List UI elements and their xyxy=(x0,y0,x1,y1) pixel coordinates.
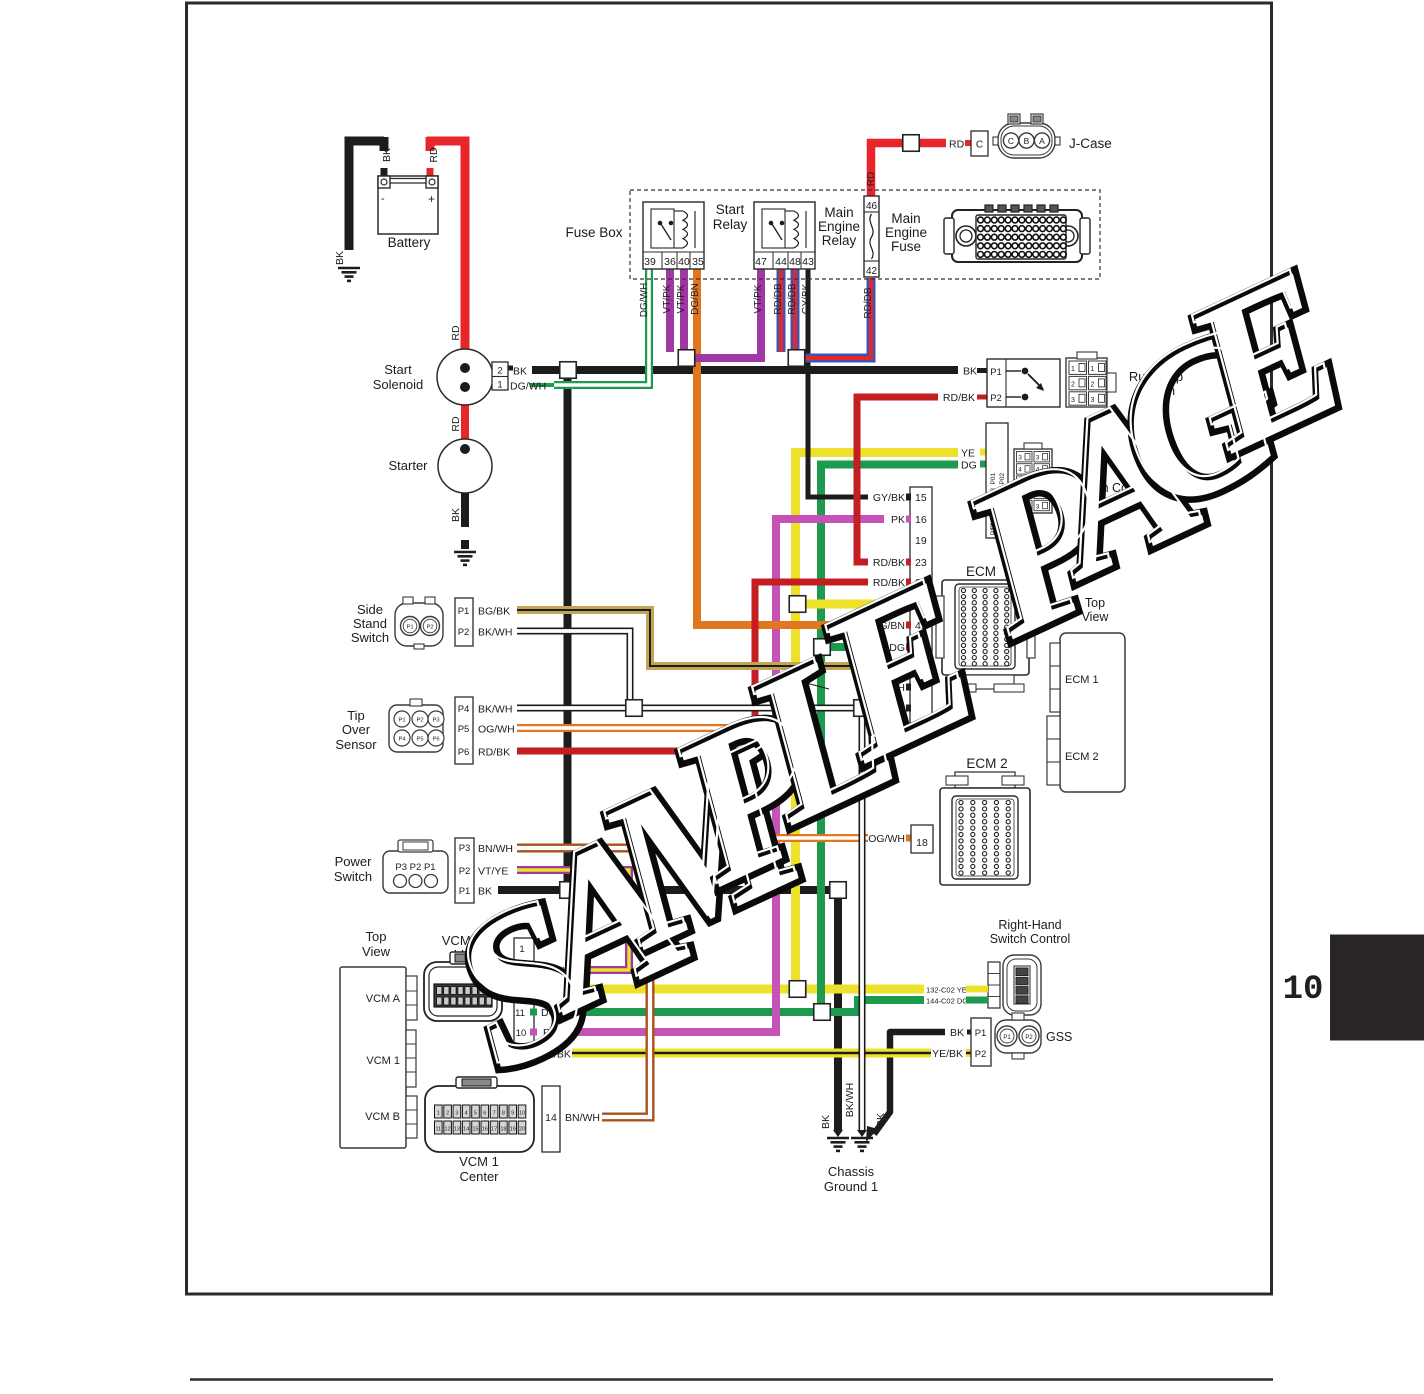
svg-text:Fuse: Fuse xyxy=(891,239,921,254)
svg-text:P1: P1 xyxy=(990,367,1002,378)
svg-text:Battery: Battery xyxy=(388,235,431,250)
svg-text:Switch: Switch xyxy=(351,630,389,645)
svg-text:Switch: Switch xyxy=(334,869,372,884)
svg-text:20: 20 xyxy=(519,1127,525,1133)
svg-text:Sensor: Sensor xyxy=(335,737,377,752)
svg-text:2: 2 xyxy=(446,1111,449,1117)
svg-text:P3: P3 xyxy=(459,843,471,854)
svg-text:VCM B: VCM B xyxy=(365,1111,400,1123)
svg-text:Engine: Engine xyxy=(885,225,927,240)
svg-text:Chassis: Chassis xyxy=(828,1164,875,1179)
svg-text:14: 14 xyxy=(545,1112,557,1124)
svg-text:P2: P2 xyxy=(459,866,471,877)
svg-text:4: 4 xyxy=(465,1111,468,1117)
svg-text:P4: P4 xyxy=(458,704,470,715)
svg-text:Switch Control: Switch Control xyxy=(990,932,1071,946)
svg-text:P1: P1 xyxy=(398,717,405,723)
svg-text:Relay: Relay xyxy=(713,217,748,232)
svg-text:ECM 1: ECM 1 xyxy=(1065,674,1099,686)
svg-text:6: 6 xyxy=(483,1111,486,1117)
svg-text:144-C02 DG: 144-C02 DG xyxy=(926,997,968,1006)
svg-text:P1: P1 xyxy=(1003,1035,1011,1041)
svg-text:P5: P5 xyxy=(416,736,423,742)
svg-text:16: 16 xyxy=(482,1127,488,1133)
svg-text:RD/BK: RD/BK xyxy=(943,392,975,404)
svg-text:J-Case: J-Case xyxy=(1069,136,1112,151)
svg-text:P2: P2 xyxy=(975,1049,987,1060)
svg-text:P1: P1 xyxy=(975,1028,987,1039)
svg-text:P6: P6 xyxy=(432,736,439,742)
svg-text:Starter: Starter xyxy=(388,458,428,473)
svg-text:P5: P5 xyxy=(458,724,470,735)
svg-text:GY/BK: GY/BK xyxy=(801,283,812,314)
svg-text:Power: Power xyxy=(335,854,373,869)
svg-text:P2: P2 xyxy=(458,627,470,638)
svg-text:DG/WH: DG/WH xyxy=(510,381,546,393)
svg-text:C: C xyxy=(976,140,983,151)
svg-text:BK: BK xyxy=(381,148,393,162)
svg-text:RD: RD xyxy=(428,147,440,163)
svg-text:B: B xyxy=(1024,136,1030,146)
svg-text:View: View xyxy=(362,944,391,959)
svg-text:RD: RD xyxy=(866,172,877,186)
svg-text:Main: Main xyxy=(891,211,920,226)
svg-text:Tip: Tip xyxy=(347,708,365,723)
svg-text:VT/PK: VT/PK xyxy=(676,284,687,313)
svg-text:BN/WH: BN/WH xyxy=(565,1112,600,1124)
svg-text:Ground 1: Ground 1 xyxy=(824,1179,878,1194)
svg-text:Side: Side xyxy=(357,602,383,617)
svg-text:RD/DB: RD/DB xyxy=(863,287,874,318)
svg-text:36: 36 xyxy=(664,256,676,268)
svg-text:P6: P6 xyxy=(458,747,470,758)
svg-text:VT/PK: VT/PK xyxy=(753,284,764,313)
svg-text:BK: BK xyxy=(963,366,977,378)
svg-text:5: 5 xyxy=(474,1111,477,1117)
svg-text:39: 39 xyxy=(644,256,656,268)
svg-text:VCM 1: VCM 1 xyxy=(366,1055,400,1067)
svg-text:48: 48 xyxy=(789,256,801,268)
svg-text:P3: P3 xyxy=(432,717,439,723)
svg-text:P2: P2 xyxy=(416,717,423,723)
svg-text:16: 16 xyxy=(915,514,927,526)
svg-text:RD: RD xyxy=(949,139,965,151)
svg-text:47: 47 xyxy=(755,256,767,268)
svg-text:A: A xyxy=(1039,136,1045,146)
svg-text:18: 18 xyxy=(500,1127,506,1133)
svg-text:42: 42 xyxy=(866,266,878,277)
svg-text:OG/WH: OG/WH xyxy=(478,724,515,736)
svg-text:15: 15 xyxy=(472,1127,478,1133)
svg-text:BK/WH: BK/WH xyxy=(844,1083,856,1117)
svg-text:Engine: Engine xyxy=(818,219,860,234)
svg-text:VCM 1: VCM 1 xyxy=(459,1154,499,1169)
svg-text:13: 13 xyxy=(454,1127,460,1133)
svg-text:BK: BK xyxy=(450,508,462,522)
svg-text:RD/BK: RD/BK xyxy=(478,747,510,759)
svg-text:RD/DB: RD/DB xyxy=(773,283,784,314)
svg-text:P2: P2 xyxy=(1025,1035,1033,1041)
svg-text:P1: P1 xyxy=(406,625,413,631)
svg-text:BK/WH: BK/WH xyxy=(478,704,512,716)
svg-text:P2: P2 xyxy=(426,625,433,631)
svg-text:BK: BK xyxy=(334,251,346,265)
svg-text:Start: Start xyxy=(716,202,745,217)
svg-text:12: 12 xyxy=(445,1127,451,1133)
svg-text:RD: RD xyxy=(450,325,462,341)
svg-text:BK: BK xyxy=(875,1113,887,1127)
svg-text:19: 19 xyxy=(510,1127,516,1133)
svg-text:3: 3 xyxy=(455,1111,458,1117)
svg-text:P3 P2 P1: P3 P2 P1 xyxy=(395,862,435,873)
svg-text:Solenoid: Solenoid xyxy=(373,377,424,392)
svg-text:Stand: Stand xyxy=(353,616,387,631)
svg-text:VCM A: VCM A xyxy=(366,993,401,1005)
svg-text:132-C02 YE: 132-C02 YE xyxy=(926,986,967,995)
svg-text:Fuse Box: Fuse Box xyxy=(565,225,622,240)
svg-text:44: 44 xyxy=(775,256,787,268)
svg-text:Right-Hand: Right-Hand xyxy=(998,918,1061,932)
svg-text:8: 8 xyxy=(502,1111,505,1117)
svg-text:BK/WH: BK/WH xyxy=(478,627,512,639)
svg-text:11: 11 xyxy=(435,1127,441,1133)
svg-text:GY/BK: GY/BK xyxy=(873,492,905,504)
svg-text:-: - xyxy=(381,193,385,205)
svg-text:RD: RD xyxy=(450,416,462,432)
svg-text:43: 43 xyxy=(802,256,814,268)
svg-text:15: 15 xyxy=(915,492,927,504)
svg-text:YE/BK: YE/BK xyxy=(932,1048,963,1060)
svg-text:GSS: GSS xyxy=(1046,1030,1072,1044)
svg-text:BK: BK xyxy=(513,366,527,378)
svg-text:1: 1 xyxy=(497,380,502,391)
svg-text:RD/DB: RD/DB xyxy=(787,283,798,314)
svg-text:14: 14 xyxy=(463,1127,469,1133)
svg-text:18: 18 xyxy=(916,837,928,849)
svg-text:9: 9 xyxy=(511,1111,514,1117)
svg-text:7: 7 xyxy=(493,1111,496,1117)
svg-text:VT/PK: VT/PK xyxy=(662,284,673,313)
svg-text:DG/BN: DG/BN xyxy=(690,283,701,315)
svg-text:10: 10 xyxy=(1283,971,1324,1009)
svg-text:17: 17 xyxy=(491,1127,497,1133)
svg-text:46: 46 xyxy=(866,201,878,212)
svg-text:BK: BK xyxy=(820,1115,832,1129)
svg-text:2: 2 xyxy=(497,366,502,377)
svg-text:Main: Main xyxy=(824,205,853,220)
svg-text:ECM 2: ECM 2 xyxy=(1065,751,1099,763)
svg-text:BK: BK xyxy=(950,1027,964,1039)
svg-text:Relay: Relay xyxy=(822,233,857,248)
svg-text:40: 40 xyxy=(678,256,690,268)
svg-text:35: 35 xyxy=(692,256,704,268)
svg-text:1: 1 xyxy=(437,1111,440,1117)
svg-text:Center: Center xyxy=(459,1169,499,1184)
svg-text:Over: Over xyxy=(342,722,371,737)
svg-text:Top: Top xyxy=(366,929,387,944)
svg-text:DG/WH: DG/WH xyxy=(639,283,650,317)
svg-text:P4: P4 xyxy=(398,736,406,742)
svg-text:+: + xyxy=(428,192,435,206)
svg-text:BG/BK: BG/BK xyxy=(478,606,510,618)
svg-text:P1: P1 xyxy=(458,606,470,617)
svg-text:Start: Start xyxy=(384,362,412,377)
svg-text:C: C xyxy=(1008,136,1014,146)
svg-text:P2: P2 xyxy=(990,393,1002,404)
